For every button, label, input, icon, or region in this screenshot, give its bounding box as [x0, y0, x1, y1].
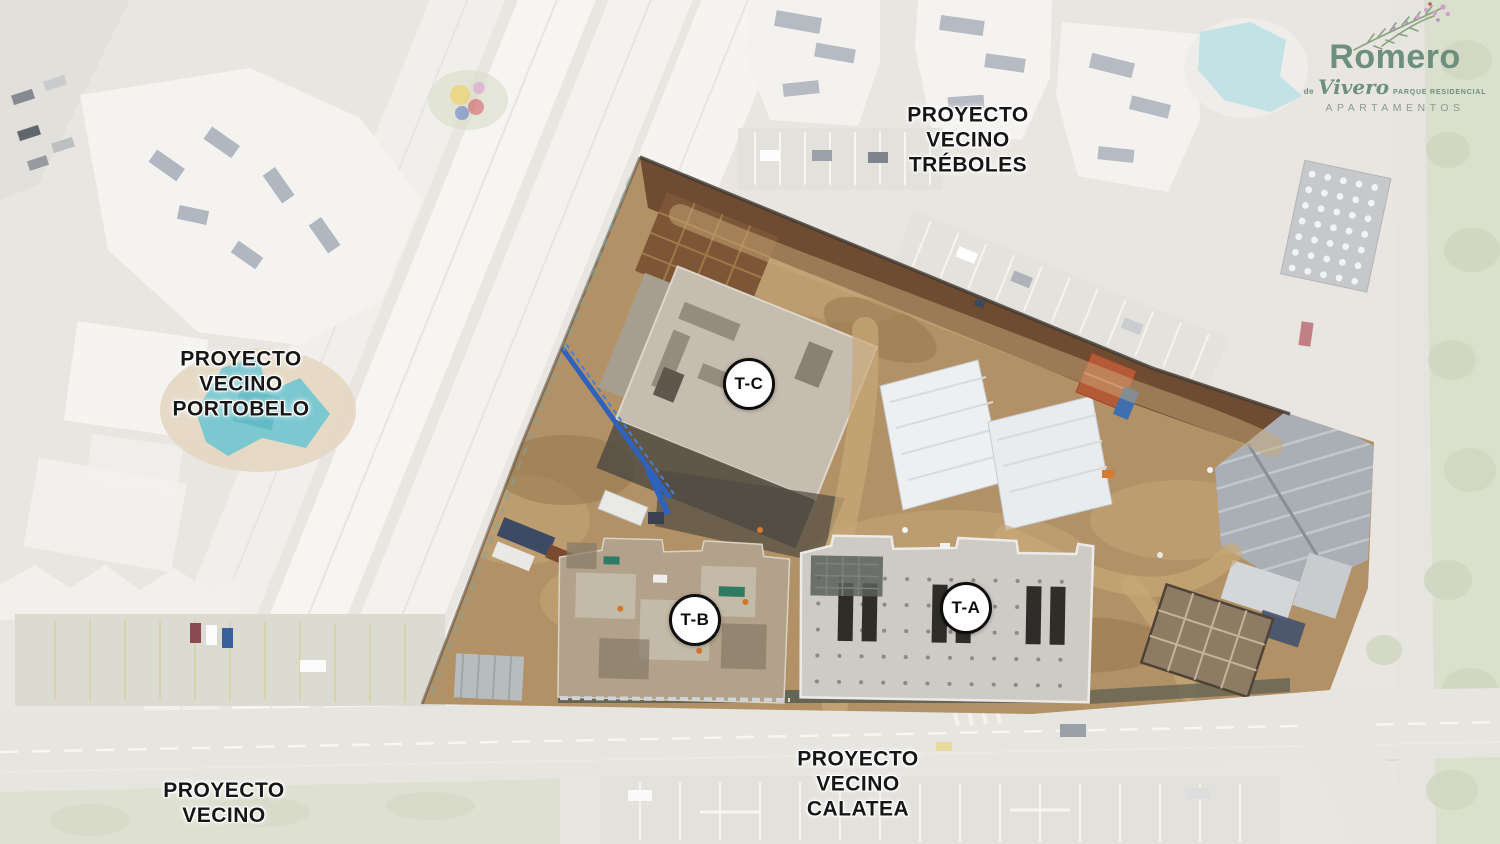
- tower-marker-ta: T-A: [940, 582, 992, 634]
- aerial-photo: [0, 0, 1500, 844]
- tower-marker-tb: T-B: [669, 594, 721, 646]
- label-line: PORTOBELO: [172, 397, 309, 422]
- label-line: VECINO: [163, 803, 284, 828]
- label-line: PROYECTO: [163, 778, 284, 803]
- neighbor-label-portobelo: PROYECTO VECINO PORTOBELO: [172, 347, 309, 422]
- neighbor-label-calatea: PROYECTO VECINO CALATEA: [797, 747, 918, 822]
- brand-name: Romero: [1302, 40, 1488, 74]
- label-line: PROYECTO: [907, 103, 1028, 128]
- brand-subtitle: APARTAMENTOS: [1302, 102, 1488, 114]
- label-line: VECINO: [907, 128, 1028, 153]
- brand-tagline: PARQUE RESIDENCIAL: [1393, 89, 1486, 96]
- brand-script-name: Vivero: [1318, 75, 1389, 99]
- aerial-site-rendering: PROYECTO VECINO TRÉBOLES PROYECTO VECINO…: [0, 0, 1500, 844]
- brand-logo: Romero de Vivero PARQUE RESIDENCIAL APAR…: [1302, 0, 1488, 118]
- brand-prefix: de: [1304, 87, 1314, 96]
- neighbor-label-treboles: PROYECTO VECINO TRÉBOLES: [907, 103, 1028, 178]
- parking-southwest: [15, 614, 445, 706]
- tower-marker-tc: T-C: [723, 358, 775, 410]
- label-line: PROYECTO: [797, 747, 918, 772]
- dotted-roof-building: [1281, 160, 1391, 292]
- label-line: TRÉBOLES: [907, 153, 1028, 178]
- neighbor-label-sur: PROYECTO VECINO: [163, 778, 284, 828]
- playground: [428, 70, 508, 130]
- label-line: VECINO: [797, 772, 918, 797]
- label-line: CALATEA: [797, 797, 918, 822]
- label-line: PROYECTO: [172, 347, 309, 372]
- label-line: VECINO: [172, 372, 309, 397]
- parking-calatea: [600, 776, 1280, 844]
- shed-southwest: [454, 653, 524, 700]
